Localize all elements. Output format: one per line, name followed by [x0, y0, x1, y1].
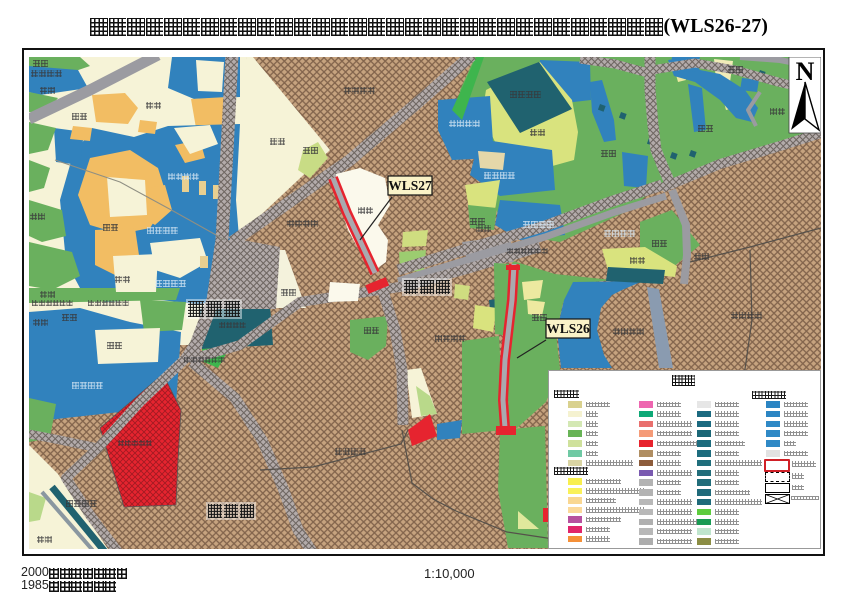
svg-text:N: N — [796, 57, 815, 86]
svg-text:WLS27: WLS27 — [388, 178, 432, 193]
svg-text:WLS26: WLS26 — [546, 321, 590, 336]
